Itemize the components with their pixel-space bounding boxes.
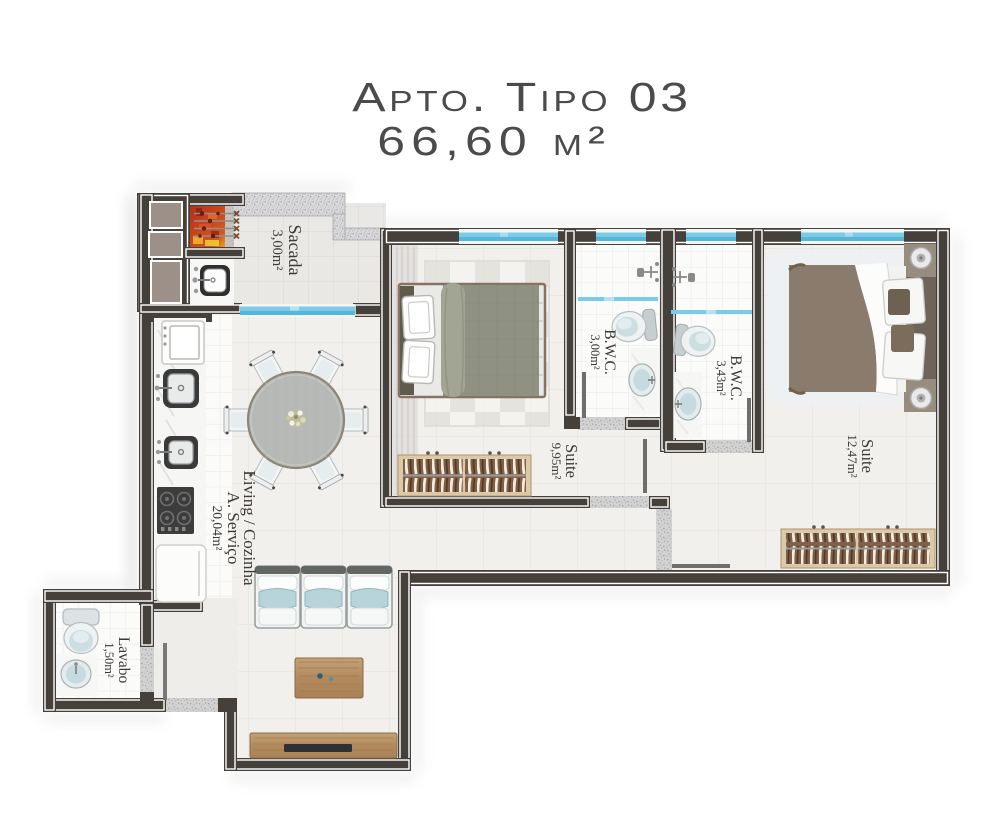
svg-text:1,50m²: 1,50m² [102, 642, 116, 678]
svg-text:3,00m²: 3,00m² [269, 229, 285, 271]
svg-text:12,47m²: 12,47m² [845, 434, 860, 477]
svg-text:A. Serviço: A. Serviço [224, 492, 243, 565]
svg-text:3,43m²: 3,43m² [714, 360, 728, 396]
svg-text:9,95m²: 9,95m² [549, 443, 564, 480]
svg-text:B.W.C.: B.W.C. [601, 329, 618, 375]
svg-text:66,60 m²: 66,60 m² [377, 118, 611, 164]
svg-text:Lavabo: Lavabo [115, 637, 132, 684]
svg-text:3,00m²: 3,00m² [588, 334, 602, 370]
svg-text:20,04m²: 20,04m² [210, 506, 225, 551]
svg-text:Apto. Tipo 03: Apto. Tipo 03 [352, 74, 691, 120]
svg-text:B.W.C.: B.W.C. [727, 355, 744, 401]
svg-text:Sacada: Sacada [285, 225, 305, 276]
